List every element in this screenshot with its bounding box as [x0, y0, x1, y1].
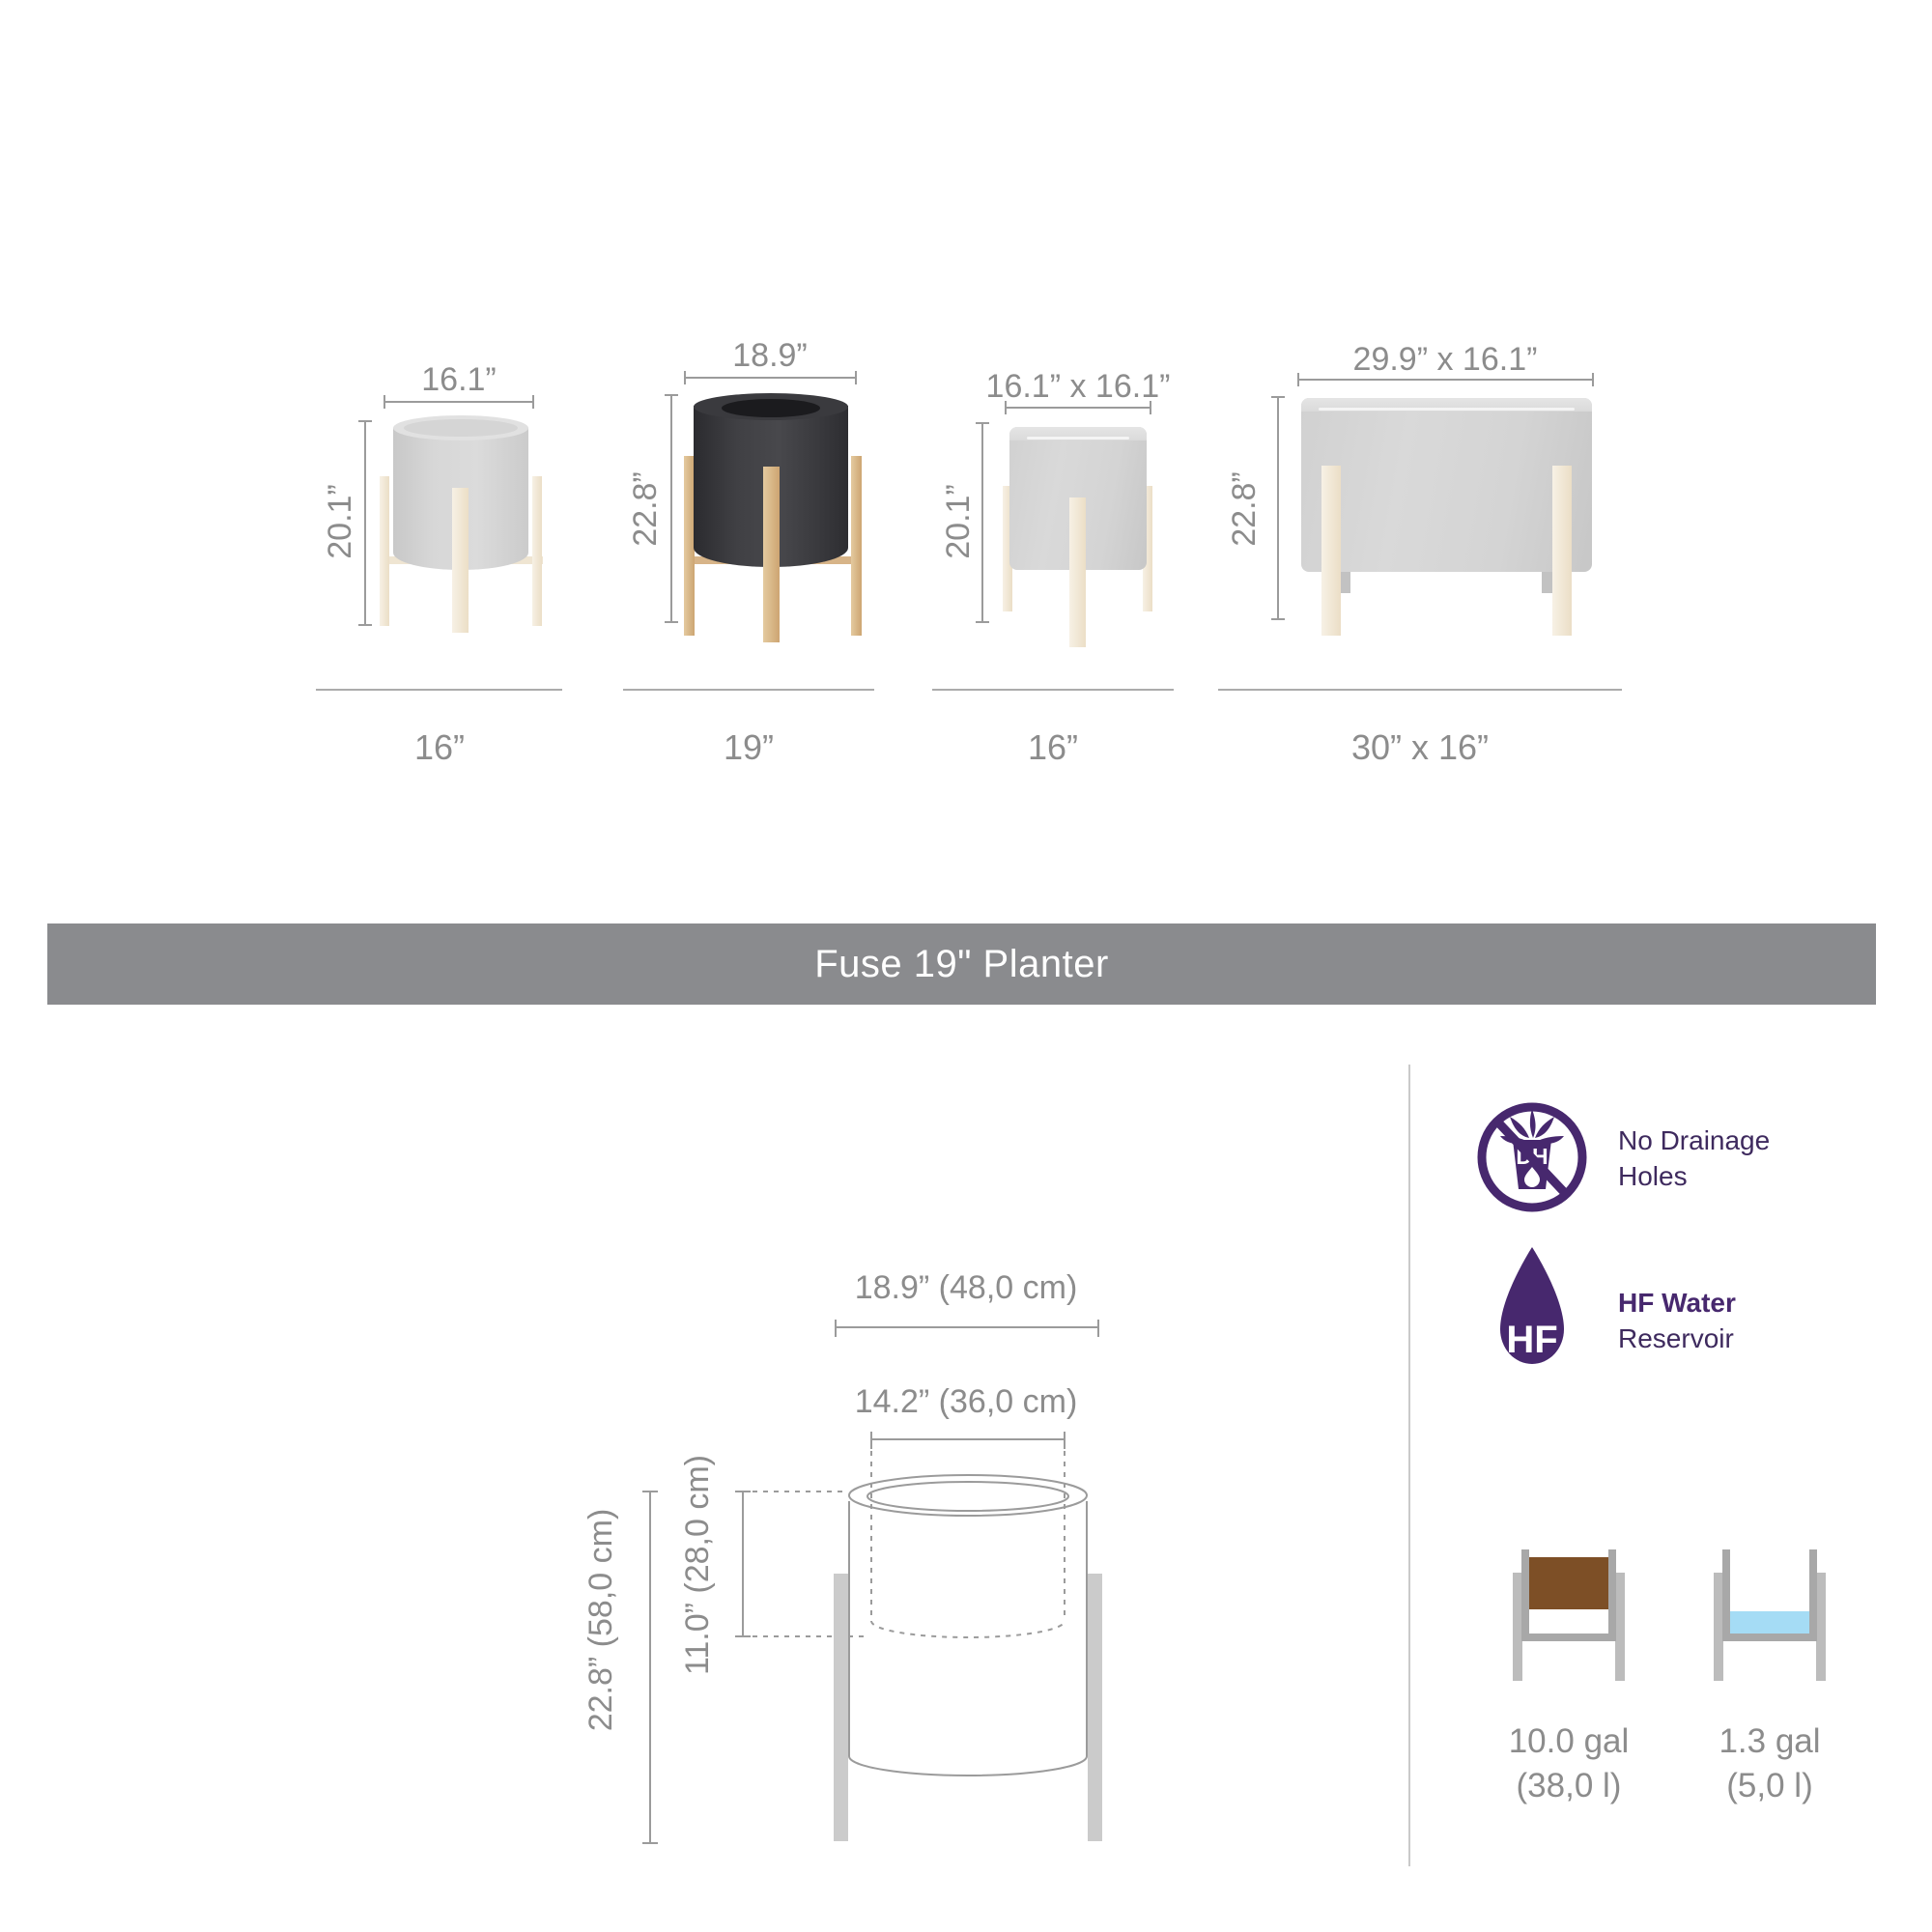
height-dimension-line: [1277, 396, 1279, 620]
pot-opening: [404, 419, 518, 437]
page-title: Fuse 19" Planter: [47, 923, 1876, 1005]
size-caption: 16”: [343, 727, 536, 768]
hf-water-label: HF Water Reservoir: [1618, 1285, 1736, 1356]
outer-width-label: 18.9” (48,0 cm): [855, 1269, 1078, 1306]
height-dimension-label: 20.1”: [939, 406, 978, 638]
size-caption: 19”: [652, 727, 845, 768]
water-capacity-label: 1.3 gal (5,0 l): [1663, 1719, 1876, 1808]
drawing-stand-leg: [834, 1574, 848, 1841]
soil-capacity-label: 10.0 gal (38,0 l): [1463, 1719, 1675, 1808]
width-dimension-line: [384, 401, 534, 403]
pot-body: [1301, 398, 1592, 572]
water-metric: (5,0 l): [1663, 1764, 1876, 1808]
planter-spec-sheet: 16.1” 20.1” 18.9” 22.8” 16.1” x 16.1” 20…: [0, 0, 1932, 1932]
soil-capacity-icon: [1513, 1546, 1625, 1681]
water-capacity-icon: [1714, 1546, 1826, 1681]
water-volume: 1.3 gal: [1663, 1719, 1876, 1764]
water-fill: [1730, 1611, 1809, 1634]
soil-volume: 10.0 gal: [1463, 1719, 1675, 1764]
width-dimension-label: 16.1”: [343, 361, 575, 399]
baseline: [623, 689, 874, 691]
size-caption: 16”: [956, 727, 1150, 768]
soil-metric: (38,0 l): [1463, 1764, 1675, 1808]
height-dimension-line: [364, 420, 366, 626]
drawing-stand-leg: [1088, 1574, 1102, 1841]
stand-leg: [763, 467, 780, 642]
no-drainage-line1: No Drainage: [1618, 1122, 1770, 1158]
technical-drawing: 18.9” (48,0 cm) 14.2” (36,0 cm) 22.8” (5…: [541, 1246, 1179, 1903]
hf-icon-text: HF: [1506, 1319, 1557, 1361]
width-dimension-label: 16.1” x 16.1”: [933, 368, 1223, 406]
no-drainage-line2: Holes: [1618, 1158, 1770, 1194]
height-dimension-label: 22.8”: [626, 393, 665, 625]
section-divider: [1408, 1065, 1410, 1866]
stand-leg: [380, 476, 389, 626]
width-dimension-line: [1297, 379, 1594, 381]
baseline: [932, 689, 1174, 691]
liner-depth-label: 11.0” (28,0 cm): [679, 1455, 716, 1675]
soil-fill: [1529, 1557, 1608, 1609]
hf-water-reservoir-icon: HF: [1492, 1244, 1572, 1370]
no-drainage-label: No Drainage Holes: [1618, 1122, 1770, 1194]
baseline: [316, 689, 562, 691]
width-dimension-line: [684, 377, 857, 379]
stand-leg: [532, 476, 542, 626]
width-dimension-label: 18.9”: [654, 337, 886, 375]
height-dimension-line: [670, 394, 672, 623]
height-dimension-label: 20.1”: [321, 406, 359, 638]
stand-leg: [452, 488, 469, 633]
overall-height-label: 22.8” (58,0 cm): [582, 1509, 619, 1732]
no-drainage-holes-icon: DH: [1475, 1097, 1589, 1217]
hf-water-line2: Reservoir: [1618, 1321, 1736, 1356]
liner-width-label: 14.2” (36,0 cm): [855, 1383, 1078, 1420]
stand-leg: [1321, 466, 1341, 636]
size-caption: 30” x 16”: [1275, 727, 1565, 768]
hf-water-line1: HF Water: [1618, 1285, 1736, 1321]
width-dimension-label: 29.9” x 16.1”: [1300, 341, 1590, 379]
title-banner: Fuse 19" Planter: [47, 923, 1876, 1005]
width-dimension-line: [1005, 407, 1151, 409]
pot-opening: [722, 399, 820, 417]
stand-leg: [1552, 466, 1572, 636]
height-dimension-line: [981, 422, 983, 623]
height-dimension-label: 22.8”: [1225, 393, 1264, 625]
stand-leg: [851, 456, 862, 636]
stand-leg: [1069, 497, 1086, 647]
baseline: [1218, 689, 1622, 691]
